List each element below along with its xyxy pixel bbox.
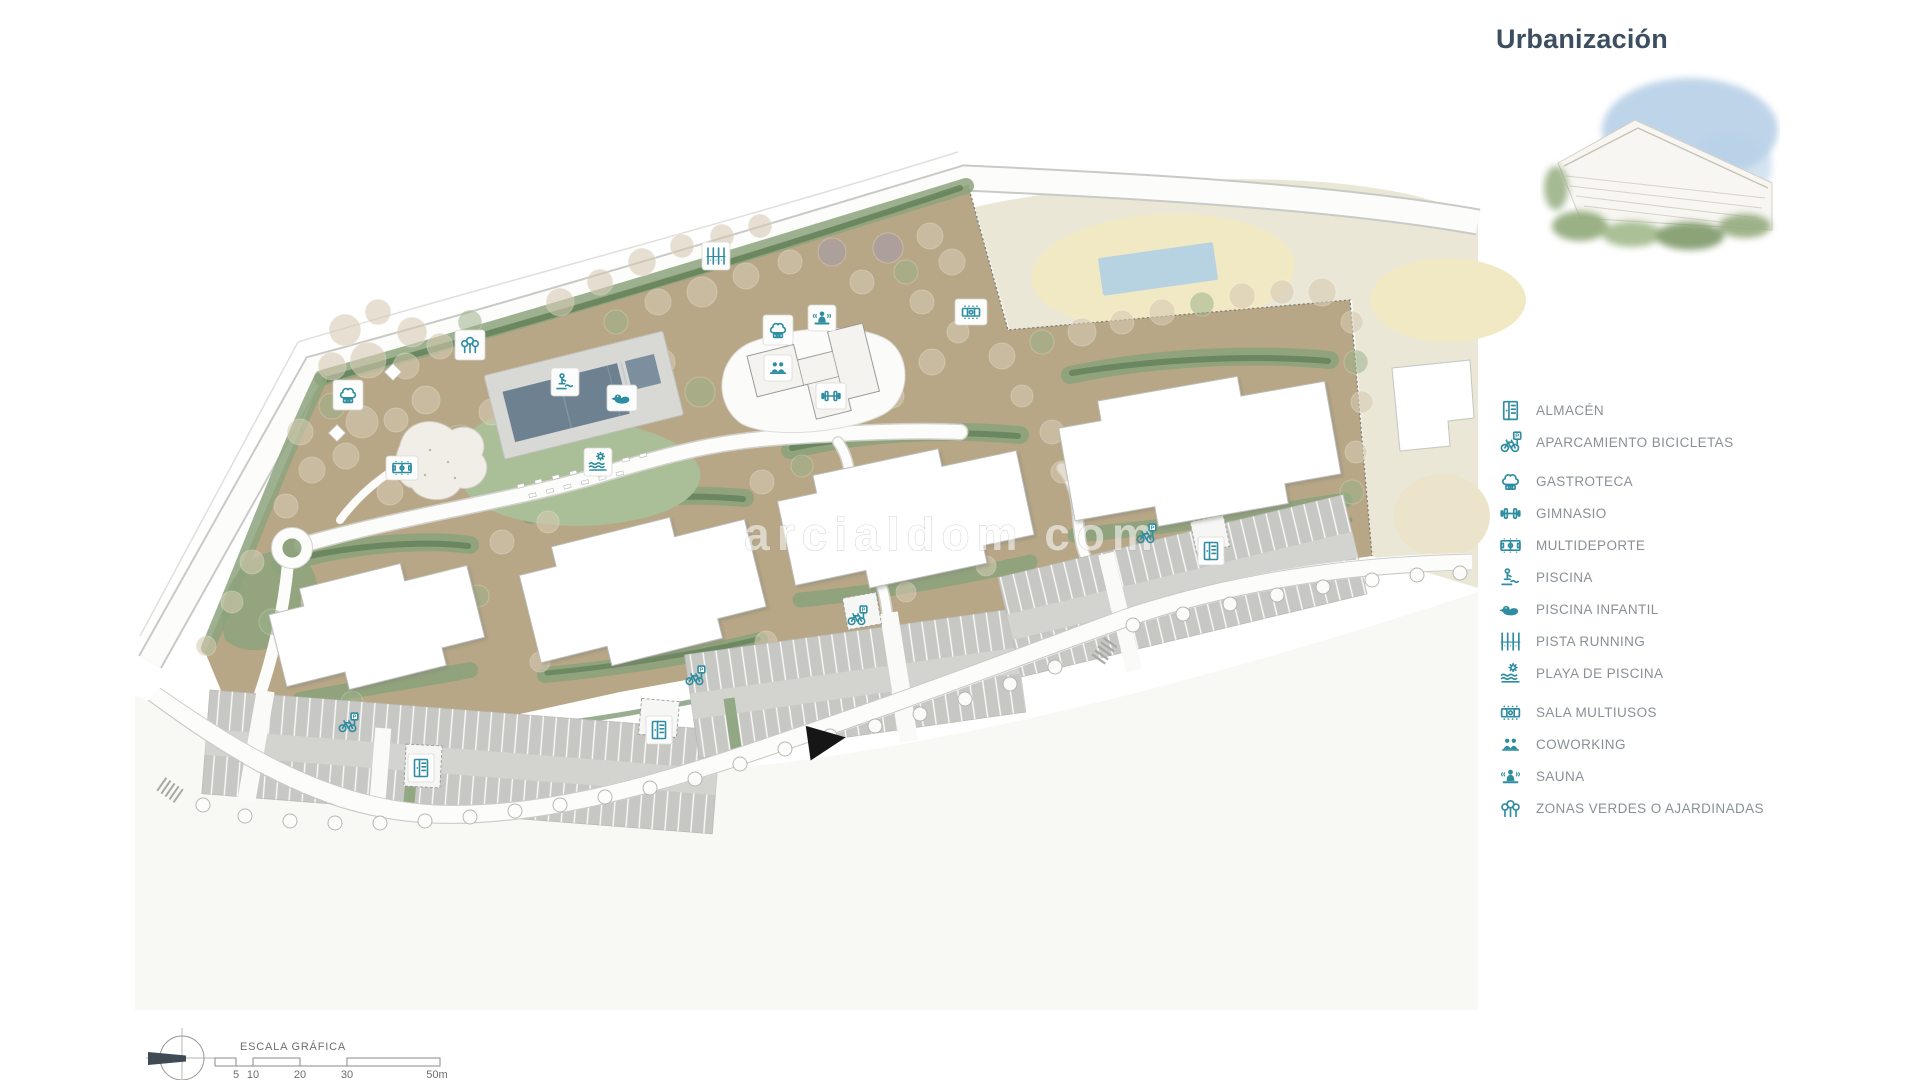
legend-item-label: PISCINA xyxy=(1536,570,1593,585)
legend-item-gastroteca: GASTROTECA xyxy=(1498,465,1908,497)
sauna-person-icon xyxy=(1498,764,1523,789)
map-badge-sauna xyxy=(808,305,836,331)
legend-item-multideporte: MULTIDEPORTE xyxy=(1498,529,1908,561)
map-badge-almacen-3 xyxy=(1198,537,1224,565)
map-badge-gastroteca-club xyxy=(763,315,793,345)
legend-item-label: COWORKING xyxy=(1536,737,1626,752)
building-render-image xyxy=(1540,68,1780,256)
sports-court-icon xyxy=(1498,533,1523,558)
scale-tick: 30 xyxy=(341,1069,353,1080)
coworking-people-icon xyxy=(1498,732,1523,757)
trees-icon xyxy=(1498,796,1523,821)
map-badge-gimnasio xyxy=(816,383,846,409)
scale-ruler xyxy=(215,1058,440,1066)
legend-item-playa-de-piscina: PLAYA DE PISCINA xyxy=(1498,657,1908,689)
neighbour-blob xyxy=(1394,474,1490,558)
map-badge-piscina-infantil xyxy=(607,385,637,411)
wardrobe-icon xyxy=(1498,398,1523,423)
map-badge-multideporte xyxy=(386,456,418,480)
legend-item-label: GIMNASIO xyxy=(1536,506,1607,521)
legend-item-label: PISTA RUNNING xyxy=(1536,634,1645,649)
multiuse-table-icon xyxy=(1498,700,1523,725)
legend-item-aparcamiento-bicicletas: APARCAMIENTO BICICLETAS xyxy=(1498,426,1908,458)
legend-item-label: GASTROTECA xyxy=(1536,474,1633,489)
legend-item-gimnasio: GIMNASIO xyxy=(1498,497,1908,529)
legend-item-piscina: PISCINA xyxy=(1498,561,1908,593)
legend-item-label: APARCAMIENTO BICICLETAS xyxy=(1536,435,1734,450)
legend-item-zonas-verdes: ZONAS VERDES O AJARDINADAS xyxy=(1498,792,1908,824)
legend-item-piscina-infantil: PISCINA INFANTIL xyxy=(1498,593,1908,625)
sun-waves-icon xyxy=(1498,661,1523,686)
watermark-text: arcialdom com xyxy=(744,508,1160,560)
legend-item-coworking: COWORKING xyxy=(1498,728,1908,760)
legend-list: ALMACÉN APARCAMIENTO BICICLETAS GASTROTE… xyxy=(1498,394,1908,824)
roundabout xyxy=(272,528,313,569)
running-track-icon xyxy=(1498,629,1523,654)
map-badge-playa-piscina xyxy=(584,448,612,476)
bicycle-parking-icon xyxy=(1498,430,1523,455)
scale-tick: 10 xyxy=(247,1069,259,1080)
dumbbell-icon xyxy=(1498,501,1523,526)
legend-item-label: SAUNA xyxy=(1536,769,1585,784)
map-badge-gastroteca-west xyxy=(333,380,363,410)
legend-item-sala-multiusos: SALA MULTIUSOS xyxy=(1498,696,1908,728)
scale-bar: ESCALA GRÁFICA 5 10 20 30 50m xyxy=(146,1028,448,1080)
page-title: Urbanización xyxy=(1496,22,1908,56)
scale-tick: 20 xyxy=(294,1069,306,1080)
compass-needle xyxy=(148,1052,186,1065)
map-badge-almacen-1 xyxy=(408,754,434,782)
legend-item-label: PLAYA DE PISCINA xyxy=(1536,666,1663,681)
map-badge-almacen-2 xyxy=(646,716,672,744)
legend-item-pista-running: PISTA RUNNING xyxy=(1498,625,1908,657)
pool-person-icon xyxy=(1498,565,1523,590)
map-badge-sala-multiusos xyxy=(955,299,987,325)
duck-icon xyxy=(1498,597,1523,622)
legend-panel: Urbanización ALMACÉN APARCAMIENTO BICICL… xyxy=(1496,10,1908,824)
legend-item-almacen: ALMACÉN xyxy=(1498,394,1908,426)
legend-item-label: SALA MULTIUSOS xyxy=(1536,705,1657,720)
legend-item-label: MULTIDEPORTE xyxy=(1536,538,1645,553)
map-badge-piscina xyxy=(551,368,579,396)
legend-item-label: ZONAS VERDES O AJARDINADAS xyxy=(1536,801,1764,816)
chef-hat-icon xyxy=(1498,469,1523,494)
map-badge-zonas-verdes xyxy=(455,330,485,360)
legend-item-label: PISCINA INFANTIL xyxy=(1536,602,1659,617)
legend-item-label: ALMACÉN xyxy=(1536,403,1604,418)
scale-label: ESCALA GRÁFICA xyxy=(240,1040,346,1053)
map-badge-pista-running xyxy=(702,242,730,270)
legend-item-sauna: SAUNA xyxy=(1498,760,1908,792)
map-badge-coworking xyxy=(764,355,792,381)
scale-tick: 50m xyxy=(426,1069,447,1080)
scale-tick: 5 xyxy=(233,1069,239,1080)
